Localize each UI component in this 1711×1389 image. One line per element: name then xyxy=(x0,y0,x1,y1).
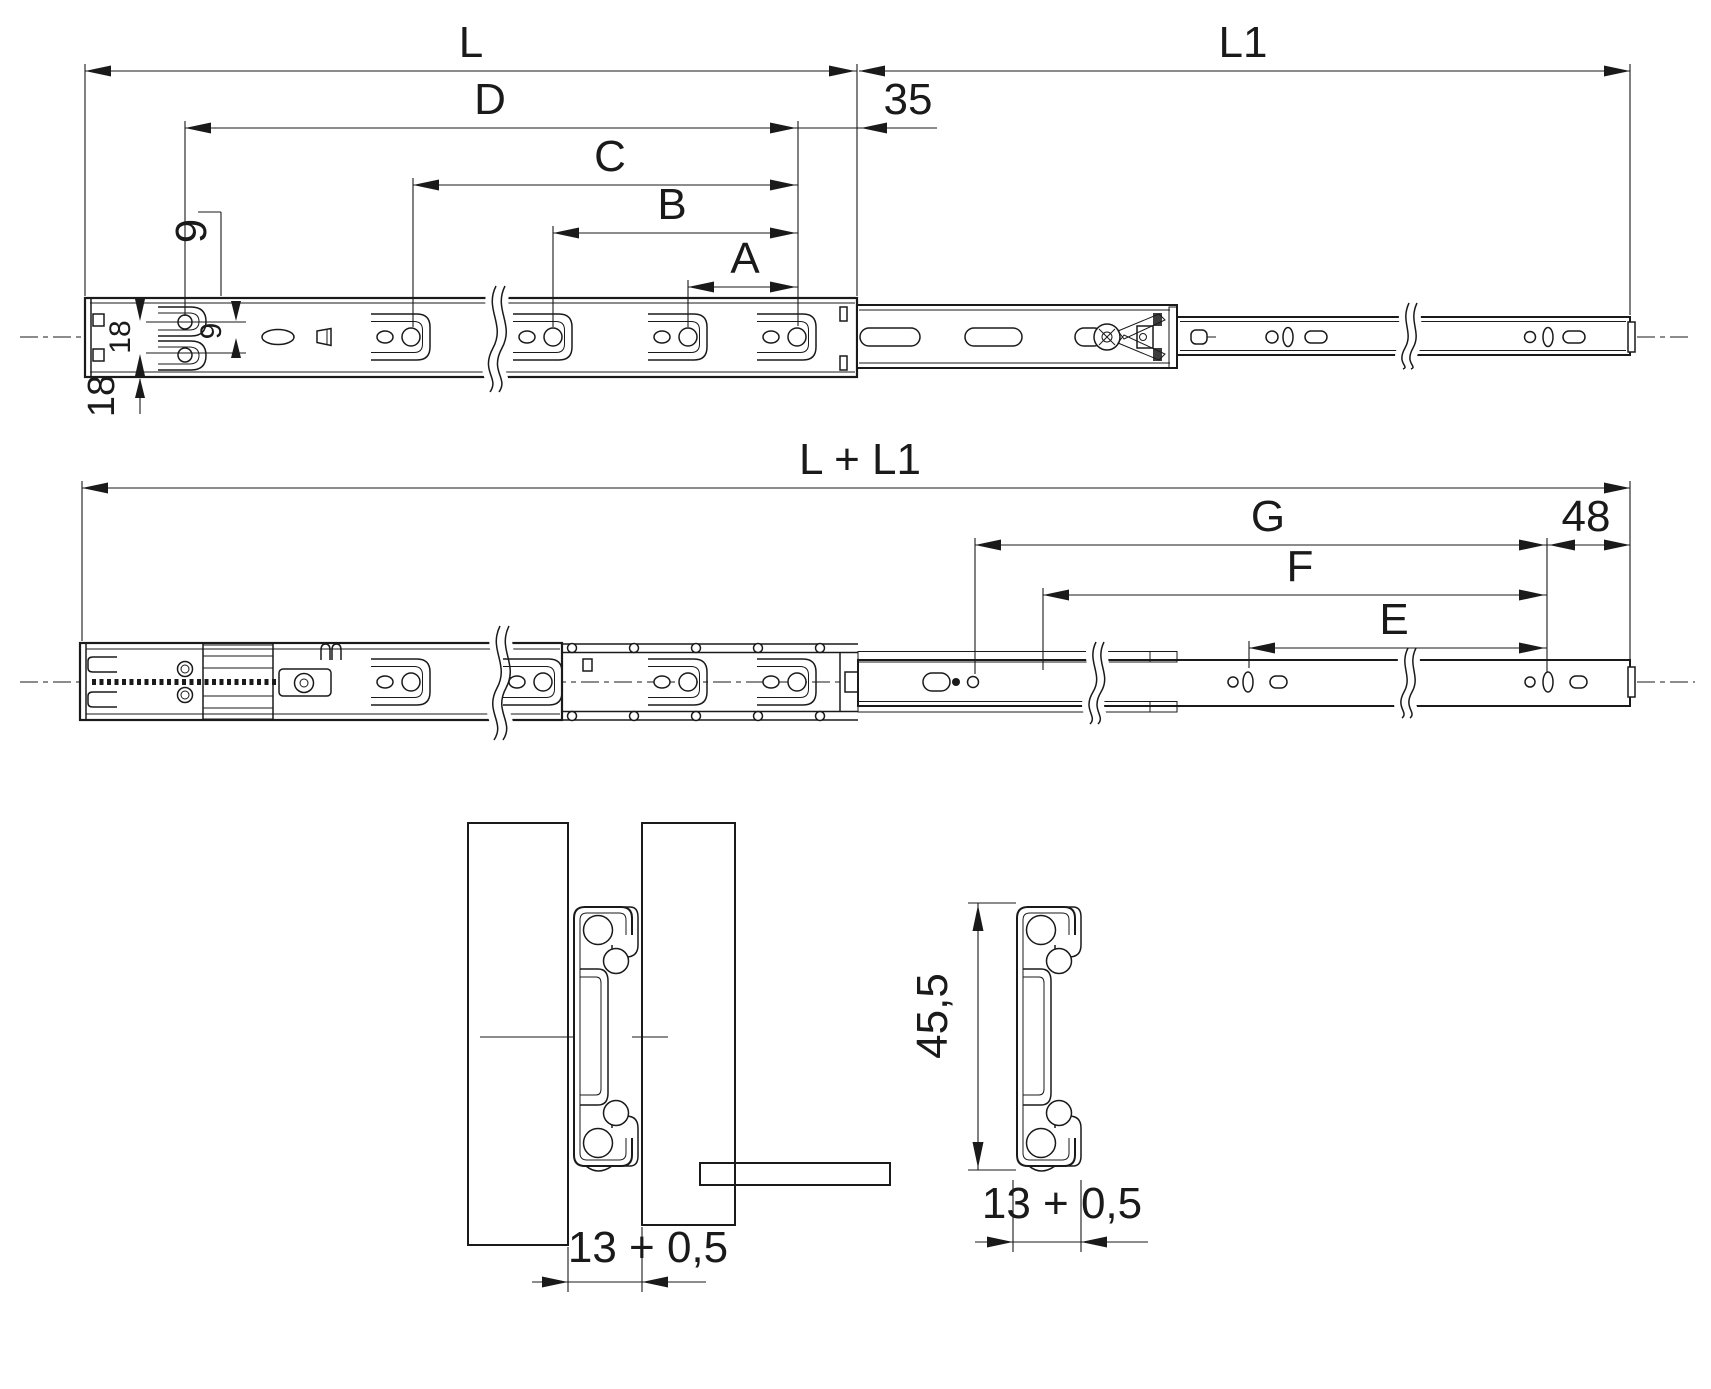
dim-9-top: 9 xyxy=(167,212,221,296)
extended-slide-view: L + L1 G 48 F E xyxy=(20,435,1695,740)
dim-label-9-top: 9 xyxy=(167,219,216,243)
drawer-bottom-panel xyxy=(700,1163,890,1185)
dim-label-F: F xyxy=(1287,542,1314,591)
dim-13-right: 13 + 0,5 xyxy=(975,1179,1148,1252)
dim-F: F xyxy=(1043,542,1547,670)
break-line xyxy=(1402,303,1417,369)
dim-35: 35 xyxy=(798,75,937,134)
dim-label-18-inner: 18 xyxy=(104,320,137,353)
dim-label-A: A xyxy=(730,234,760,283)
dim-45-5: 45,5 xyxy=(908,903,1016,1170)
break-line xyxy=(493,626,511,740)
dim-label-13-right: 13 + 0,5 xyxy=(982,1179,1142,1228)
closed-slide-view: L L1 D 35 C B xyxy=(20,18,1690,417)
dim-48: 48 xyxy=(1549,492,1630,551)
dim-label-L: L xyxy=(459,18,483,67)
dim-label-35: 35 xyxy=(884,75,933,124)
mounting-section-view: 13 + 0,5 xyxy=(468,823,890,1292)
break-line xyxy=(1401,648,1416,718)
dim-label-B: B xyxy=(657,180,686,229)
break-line xyxy=(488,286,506,392)
dim-label-total: L + L1 xyxy=(799,435,921,484)
disconnect-lever xyxy=(279,669,331,696)
cabinet-side-panel xyxy=(468,823,568,1245)
dim-label-E: E xyxy=(1379,595,1408,644)
intermediate-member-closed xyxy=(857,305,1185,368)
slide-cross-section xyxy=(574,907,638,1171)
dim-label-18-below: 18 xyxy=(81,375,123,417)
profile-section-view: 45,5 13 + 0,5 xyxy=(908,903,1148,1252)
slide-cross-section-profile xyxy=(1017,907,1081,1171)
dim-label-L1: L1 xyxy=(1219,18,1268,67)
technical-drawing-page: L L1 D 35 C B xyxy=(0,0,1711,1389)
dim-label-13-left: 13 + 0,5 xyxy=(568,1223,728,1272)
dim-label-9-inner: 9 xyxy=(195,323,228,340)
break-line xyxy=(1089,642,1105,724)
dim-13-left: 13 + 0,5 xyxy=(532,1223,728,1292)
dim-18-below: 18 xyxy=(81,375,145,417)
cabinet-member-extended xyxy=(80,626,562,740)
dim-label-G: G xyxy=(1251,492,1285,541)
drawer-member-closed xyxy=(1177,303,1635,369)
dim-L1: L1 xyxy=(859,18,1630,315)
drawing-canvas: L L1 D 35 C B xyxy=(0,0,1711,1389)
dim-E: E xyxy=(1249,595,1547,668)
mounting-slot xyxy=(648,659,707,705)
dim-label-C: C xyxy=(594,132,626,181)
dim-label-D: D xyxy=(474,75,506,124)
dim-label-45-5: 45,5 xyxy=(908,973,957,1059)
drawer-side-panel xyxy=(642,823,735,1225)
dim-label-48: 48 xyxy=(1562,492,1611,541)
